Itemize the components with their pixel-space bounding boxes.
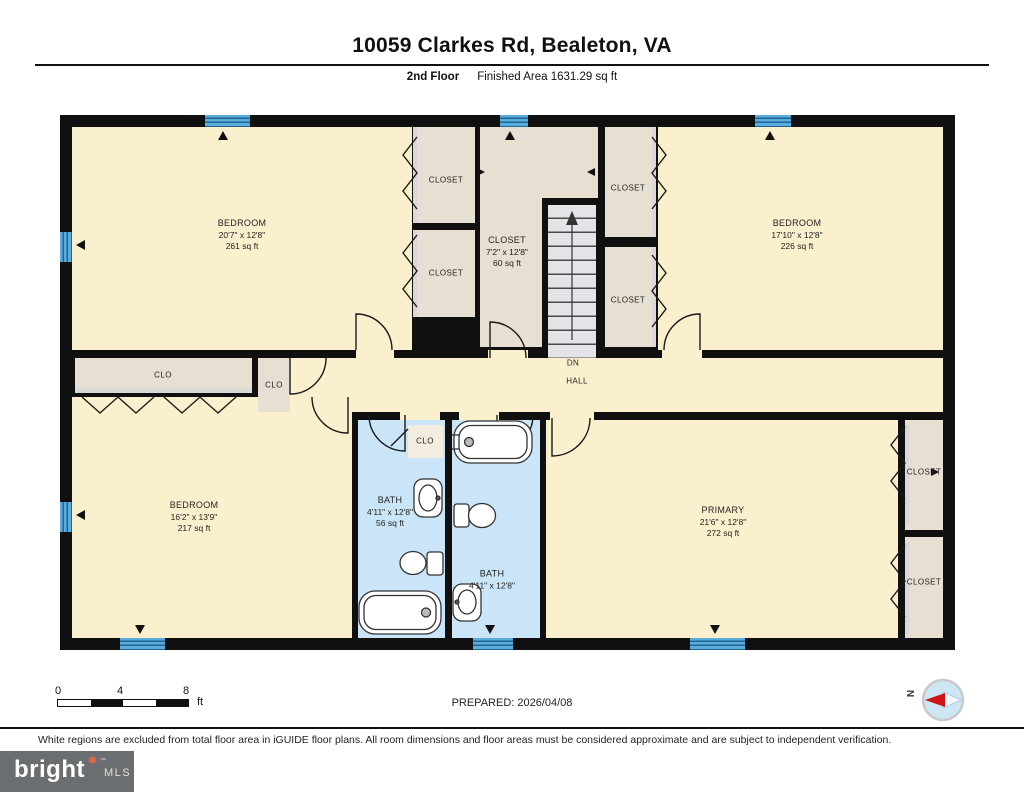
label-clo-small: CLO (265, 381, 283, 390)
staircase (548, 205, 596, 358)
room-closet-f (905, 537, 943, 638)
label-closet-mid: CLOSET 7'2" x 12'8" 60 sq ft (486, 235, 528, 269)
scale-tick-8: 8 (183, 685, 189, 697)
logo-trademark: ™ (100, 758, 106, 764)
logo-star-icon: ✱ (88, 754, 97, 767)
logo-brand-text: bright (14, 756, 85, 784)
closet-track (413, 127, 417, 223)
window (690, 638, 745, 650)
room-hall (290, 358, 943, 412)
label-closet-a: CLOSET (429, 176, 463, 185)
window (60, 502, 72, 532)
window (60, 232, 72, 262)
window (755, 115, 791, 127)
scale-tick-0: 0 (55, 685, 61, 697)
floor-label: 2nd Floor (407, 71, 459, 83)
label-bedroom-bottom-left: BEDROOM 16'2" x 13'9" 217 sq ft (170, 500, 219, 534)
label-closet-d: CLOSET (611, 296, 645, 305)
label-bath-right: BATH 4'11" x 12'8" (469, 569, 515, 592)
label-stairs-dn: DN (567, 359, 579, 368)
disclaimer-text: White regions are excluded from total fl… (38, 734, 998, 746)
label-closet-e: CLOSET (907, 468, 941, 477)
closet-track (75, 389, 252, 393)
finished-area-label: Finished Area 1631.29 sq ft (477, 71, 617, 83)
logo-suffix-text: MLS (104, 767, 131, 779)
label-clo-long: CLO (154, 371, 172, 380)
closet-track (413, 230, 417, 317)
scale-tick-4: 4 (117, 685, 123, 697)
compass-north-label: N (906, 690, 917, 697)
header-divider (35, 64, 989, 66)
door-opening (400, 412, 440, 420)
door-opening (488, 350, 528, 358)
floor-subtitle: 2nd FloorFinished Area 1631.29 sq ft (0, 71, 1024, 83)
label-closet-c: CLOSET (611, 184, 645, 193)
door-opening (662, 350, 702, 358)
label-bath-left: BATH 4'11" x 12'8" 56 sq ft (367, 495, 413, 529)
door-opening (550, 412, 594, 420)
page-title: 10059 Clarkes Rd, Bealeton, VA (0, 34, 1024, 58)
window (205, 115, 250, 127)
door-opening (306, 393, 350, 401)
closet-track (652, 127, 656, 237)
compass-icon (910, 672, 972, 728)
prepared-date: PREPARED: 2026/04/08 (0, 697, 1024, 709)
label-hall: HALL (566, 377, 588, 386)
label-closet-b: CLOSET (429, 269, 463, 278)
closet-track (652, 247, 656, 347)
label-closet-f: CLOSET (907, 578, 941, 587)
label-bedroom-top-right: BEDROOM 17'10" x 12'8" 226 sq ft (771, 218, 822, 252)
label-bedroom-top-left: BEDROOM 20'7" x 12'8" 261 sq ft (218, 218, 267, 252)
compass: N (910, 672, 972, 728)
label-clo-bath: CLO (416, 437, 434, 446)
door-opening (459, 412, 499, 420)
floor-plan: BEDROOM 20'7" x 12'8" 261 sq ft BEDROOM … (60, 115, 955, 650)
room-bath-right (452, 420, 540, 638)
label-primary: PRIMARY 21'6" x 12'8" 272 sq ft (700, 505, 747, 539)
window (473, 638, 513, 650)
closet-track (905, 542, 909, 635)
room-closet-c (605, 127, 652, 237)
window (120, 638, 165, 650)
footer-divider (0, 727, 1024, 729)
door-opening (356, 350, 394, 358)
window (500, 115, 528, 127)
brightmls-logo: bright ✱ ™ MLS (0, 751, 134, 792)
